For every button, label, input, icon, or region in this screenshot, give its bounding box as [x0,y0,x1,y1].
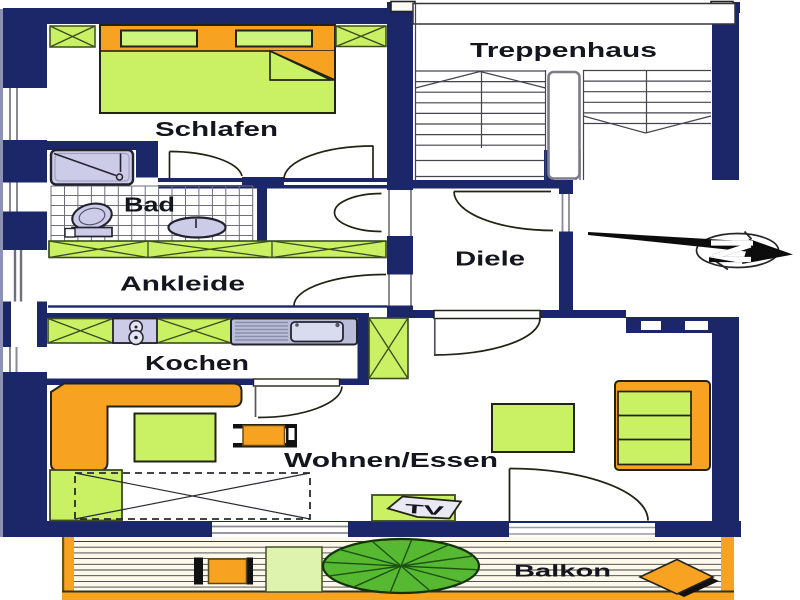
svg-text:Treppenhaus: Treppenhaus [470,40,657,62]
svg-text:TV: TV [404,501,445,519]
svg-text:Schlafen: Schlafen [155,119,278,141]
svg-text:Diele: Diele [455,248,525,271]
svg-text:Ankleide: Ankleide [120,274,245,296]
svg-text:Bad: Bad [124,195,175,217]
svg-text:Kochen: Kochen [145,353,249,375]
svg-text:Wohnen/Essen: Wohnen/Essen [284,450,498,472]
svg-text:Balkon: Balkon [514,562,611,581]
